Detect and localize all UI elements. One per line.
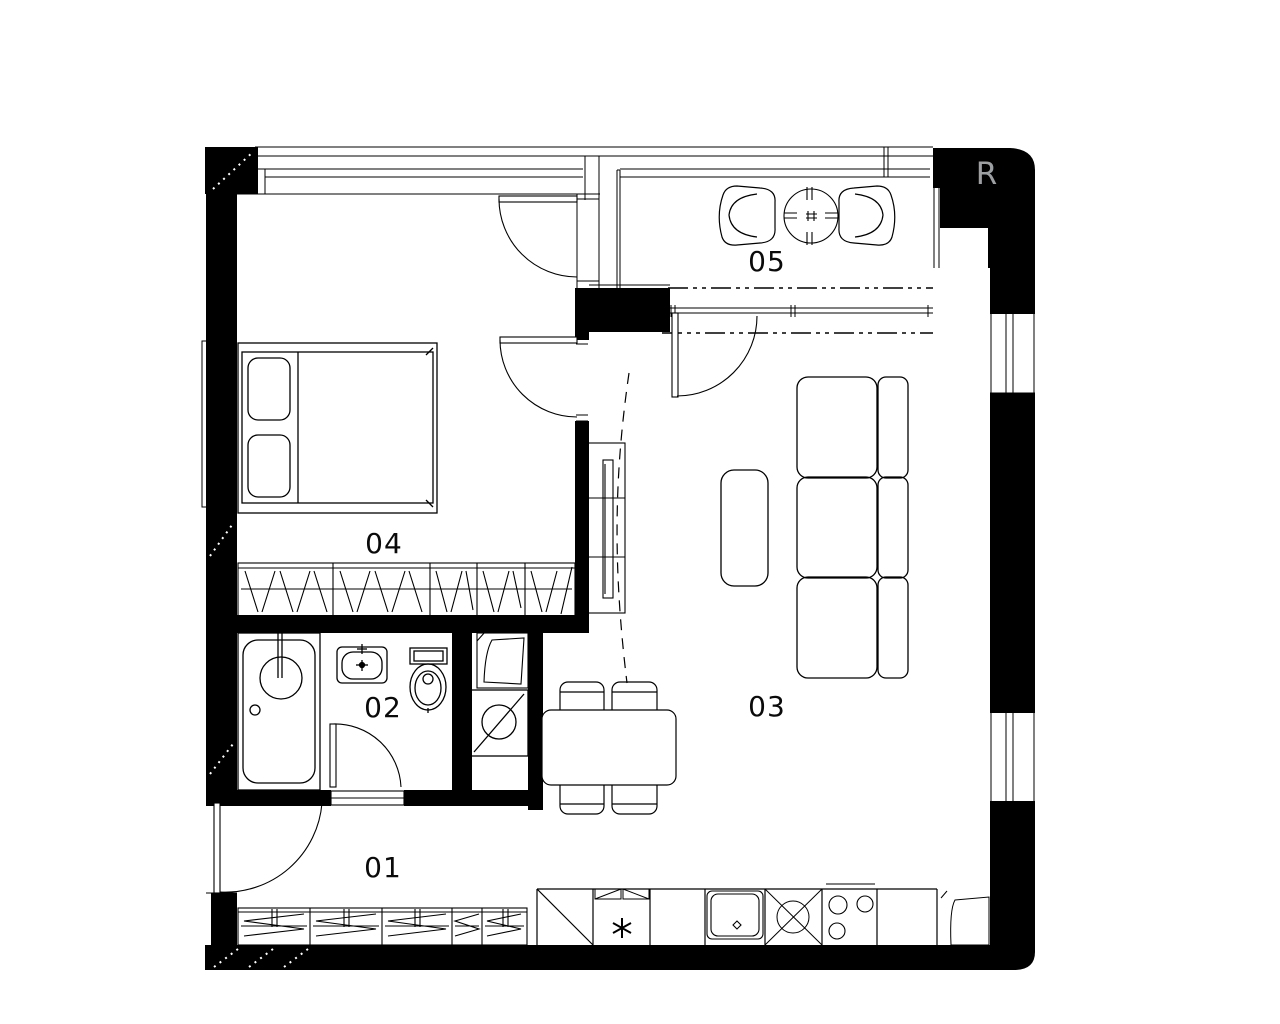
wall-bathroom-shaft xyxy=(452,633,472,791)
kitchen-counter xyxy=(537,884,989,945)
corner-mark-label: R xyxy=(976,156,999,192)
dining-set xyxy=(542,682,676,814)
wall-block-bedroom-balcony xyxy=(575,288,670,332)
wall-right-lower xyxy=(990,801,1035,946)
room-label-04: 04 xyxy=(365,527,403,560)
toilet xyxy=(410,648,447,713)
fridge-freezer xyxy=(595,889,649,938)
floor-plan-drawing: 01 02 03 04 05 R xyxy=(0,0,1280,1024)
coffee-table xyxy=(721,470,768,586)
dishwasher xyxy=(765,889,822,945)
door-bedroom-balcony xyxy=(499,196,577,277)
window-right-upper xyxy=(990,313,1035,393)
cooktop xyxy=(826,884,875,939)
living-room-furniture xyxy=(542,377,908,814)
dining-table xyxy=(542,710,676,785)
window-right-lower xyxy=(990,712,1035,802)
pillow xyxy=(248,435,290,497)
door-bathroom xyxy=(330,724,404,805)
washbasin xyxy=(337,644,387,683)
balcony-furniture xyxy=(719,186,895,245)
corner-stool xyxy=(941,891,989,945)
room-label-01: 01 xyxy=(364,851,402,884)
bathtub xyxy=(238,633,320,790)
dashed-path-line xyxy=(617,373,629,683)
wall-right-middle xyxy=(990,393,1035,713)
wall-bottom xyxy=(205,945,1035,970)
wall-bathroom-hall-left xyxy=(206,790,331,806)
balcony-table xyxy=(784,187,838,245)
corner-cabinet-diagonal xyxy=(537,889,593,945)
doors xyxy=(214,196,757,893)
balcony-chair-left xyxy=(719,186,775,245)
bed xyxy=(238,343,437,513)
kitchen-sink xyxy=(707,891,763,939)
hall-wardrobe xyxy=(238,908,527,945)
wall-bedroom-living xyxy=(575,421,589,633)
washing-machine xyxy=(470,690,528,756)
door-bedroom-entry xyxy=(500,337,577,417)
wall-shaft-living xyxy=(528,633,543,810)
door-apartment-entry xyxy=(214,803,322,893)
wall-left-upper xyxy=(206,147,237,803)
room-label-02: 02 xyxy=(364,691,402,724)
installation-shaft xyxy=(477,632,528,688)
bedroom-wardrobe xyxy=(238,563,575,618)
balcony-overhead-lines xyxy=(662,288,933,333)
freezer-asterisk xyxy=(613,918,631,938)
balcony-chair-right xyxy=(839,186,895,245)
pillow xyxy=(248,358,290,420)
room-label-05: 05 xyxy=(748,245,786,278)
door-living-balcony xyxy=(672,313,757,397)
wall-bathroom-hall-right xyxy=(404,790,543,806)
sofa xyxy=(797,377,908,678)
floor-plan-page: 01 02 03 04 05 R xyxy=(0,0,1280,1024)
room-label-03: 03 xyxy=(748,690,786,723)
bedroom-furniture xyxy=(238,343,575,618)
